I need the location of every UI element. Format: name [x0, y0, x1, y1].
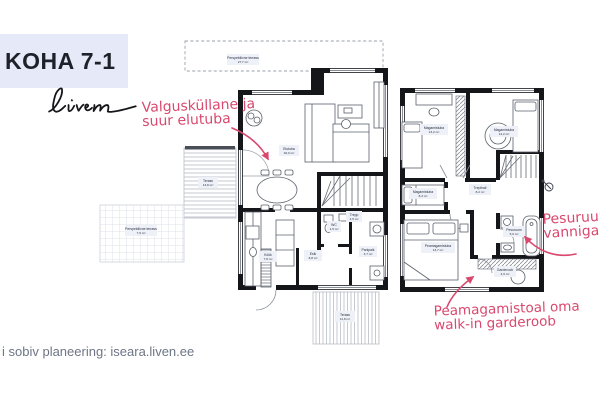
room-label-terass-bottom: Terass 11,8 m²: [335, 311, 355, 322]
liven-logo: [42, 84, 142, 118]
floorplan-page: { "header": { "title": "KOHA 7-1", "logo…: [0, 0, 600, 400]
svg-text:13,7 m²: 13,7 m²: [433, 248, 444, 252]
room-label-magamistuba-3: Magamistuba 8,3 m²: [409, 188, 437, 199]
annotation-bath-line2: vanniga: [543, 223, 600, 241]
annotation-wardrobe: Peamagamistoal oma walk-in garderoob: [434, 300, 581, 333]
liven-logo-signature: [42, 84, 142, 118]
svg-text:4,6 m²: 4,6 m²: [501, 272, 510, 276]
entry-door-arc: [256, 290, 276, 310]
annotation-arrow-living: [232, 128, 268, 159]
room-label-prospective-patio: Perspektiivne terrass 7,9 m²: [125, 225, 157, 236]
room-label-peamagamistuba: Peamagamistuba 13,7 m²: [421, 242, 455, 253]
room-label-pesuruum: Pesuruum 5,0 m²: [503, 226, 525, 237]
room-label-magamistuba-2: Magamistuba 12,2 m²: [490, 126, 518, 137]
svg-text:7,9 m²: 7,9 m²: [137, 231, 146, 235]
annotation-bath: Pesuruum vanniga: [542, 209, 600, 241]
annotation-living: Valgusküllane ja suur elutuba: [142, 97, 256, 129]
svg-text:11,8 m²: 11,8 m²: [340, 317, 350, 321]
svg-text:8,3 m²: 8,3 m²: [419, 194, 428, 198]
svg-text:7,8 m²: 7,8 m²: [264, 257, 273, 261]
svg-text:8,8 m²: 8,8 m²: [309, 256, 318, 260]
prospective-terrace-outline: [185, 41, 383, 71]
svg-text:12,2 m²: 12,2 m²: [499, 132, 510, 136]
svg-text:40,0 m²: 40,0 m²: [284, 151, 295, 155]
footer-planning-link: i sobiv planeering: iseara.liven.ee: [2, 344, 194, 359]
svg-text:1,5 m²: 1,5 m²: [330, 227, 339, 231]
svg-text:8,2 m²: 8,2 m²: [476, 190, 485, 194]
room-label-esik: Esik 8,8 m²: [304, 250, 322, 261]
room-label-panipaik: Panipaik 3,7 m²: [359, 246, 377, 257]
room-label-elutuba: Elutuba 40,0 m²: [279, 145, 299, 156]
room-label-trepp: Trepp 4,5 m²: [346, 211, 362, 222]
room-label-garderoob: Garderoob 4,6 m²: [494, 266, 516, 277]
staircase-floor1: [322, 176, 376, 206]
svg-text:3,7 m²: 3,7 m²: [364, 252, 373, 256]
room-label-magamistuba-1: Magamistuba 13,2 m²: [420, 124, 448, 135]
svg-text:4,5 m²: 4,5 m²: [350, 217, 359, 221]
room-label-kook: Köök 7,8 m²: [259, 251, 277, 262]
first-floor-plan: [100, 41, 388, 344]
closet-hatch: [456, 96, 465, 176]
svg-text:27,7 m²: 27,7 m²: [238, 60, 249, 64]
svg-text:13,8 m²: 13,8 m²: [203, 183, 214, 187]
svg-text:13,2 m²: 13,2 m²: [429, 130, 440, 134]
page-title: KOHA 7-1: [0, 48, 116, 75]
header-box: KOHA 7-1: [0, 34, 128, 88]
staircase-floor2: [500, 155, 536, 178]
room-label-trepihall: Trepihall 8,2 m²: [469, 184, 491, 195]
room-label-terass-left: Terass 13,8 m²: [198, 177, 218, 188]
svg-text:5,0 m²: 5,0 m²: [510, 232, 519, 236]
room-label-prospective-terrace: Perspektiivne terrass 27,7 m²: [227, 54, 259, 65]
room-label-wc: WC 1,5 m²: [327, 221, 341, 232]
